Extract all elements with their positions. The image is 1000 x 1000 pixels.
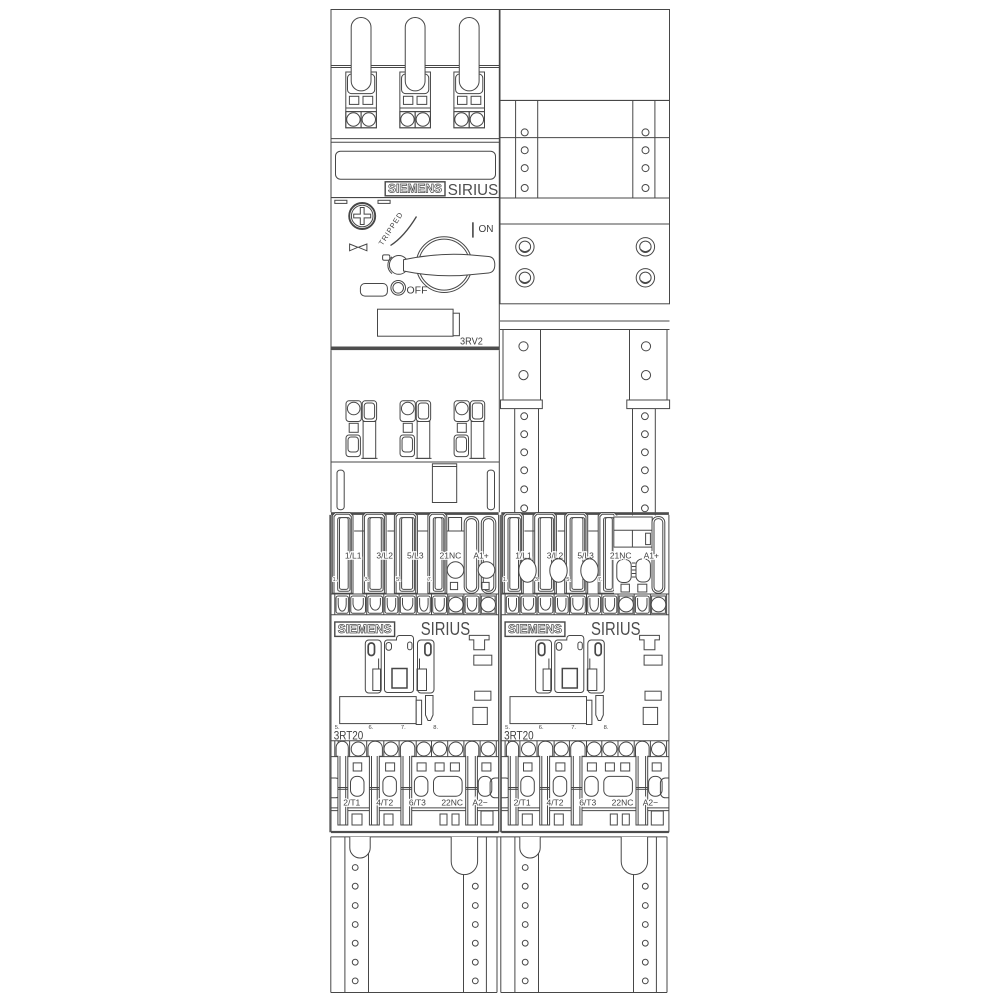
svg-text:21NC: 21NC xyxy=(610,551,632,561)
svg-text:ON: ON xyxy=(479,224,494,235)
svg-text:3RV2: 3RV2 xyxy=(460,335,483,347)
svg-text:SIEMENS: SIEMENS xyxy=(388,182,442,196)
svg-text:OFF: OFF xyxy=(407,285,428,297)
svg-text:A1+: A1+ xyxy=(644,551,659,561)
svg-text:SIRIUS: SIRIUS xyxy=(448,182,499,199)
